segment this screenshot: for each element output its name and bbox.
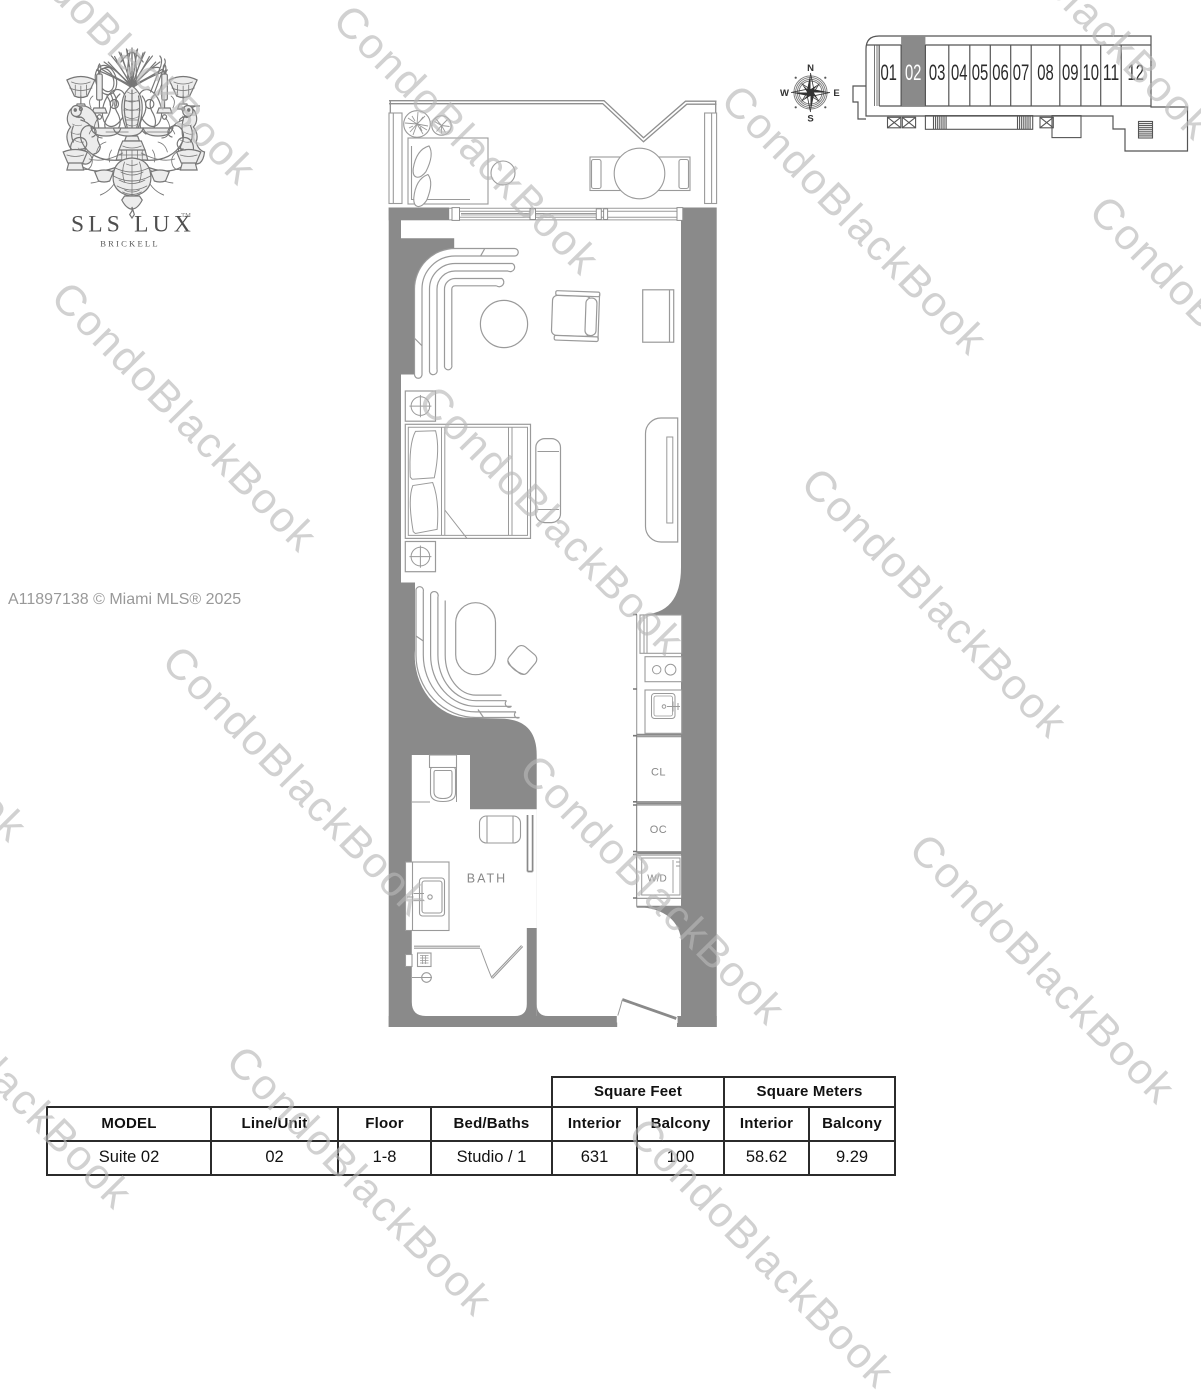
svg-text:SLS LUX: SLS LUX (71, 212, 195, 238)
svg-text:09: 09 (1062, 60, 1079, 85)
svg-text:S: S (807, 114, 813, 125)
svg-text:07: 07 (1013, 60, 1030, 85)
svg-text:TM: TM (181, 212, 191, 219)
svg-text:BRICKELL: BRICKELL (100, 239, 160, 249)
svg-text:04: 04 (951, 60, 968, 85)
svg-text:N: N (807, 63, 814, 74)
svg-text:02: 02 (905, 60, 922, 85)
svg-text:OC: OC (650, 824, 668, 836)
svg-text:E: E (833, 88, 839, 99)
svg-text:CL: CL (651, 767, 666, 779)
svg-text:BATH: BATH (467, 872, 507, 886)
svg-text:W: W (780, 88, 789, 99)
svg-text:06: 06 (992, 60, 1009, 85)
svg-text:03: 03 (929, 60, 946, 85)
svg-text:01: 01 (880, 60, 897, 85)
svg-text:08: 08 (1037, 60, 1054, 85)
svg-text:05: 05 (972, 60, 989, 85)
svg-text:10: 10 (1083, 60, 1100, 85)
